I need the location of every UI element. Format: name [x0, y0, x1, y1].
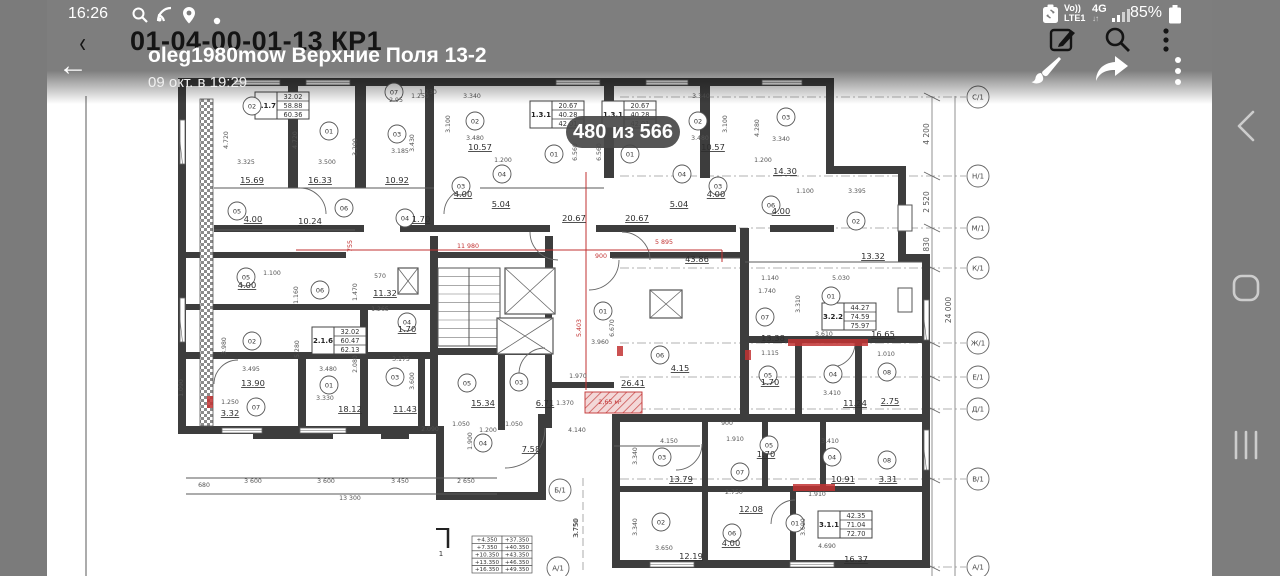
plan-label: 755 — [347, 240, 354, 252]
plan-label: 7.58 — [522, 444, 540, 454]
plan-label: 1.265 — [371, 306, 389, 313]
plan-label: 4.280 — [754, 119, 761, 137]
plan-label: 44.27 — [851, 304, 870, 312]
wall — [614, 414, 924, 422]
wall — [186, 304, 432, 310]
plan-label: 3 600 — [317, 478, 335, 485]
wall — [430, 236, 438, 428]
plan-label: 11.43 — [393, 404, 417, 414]
plan-label: 05 — [233, 207, 241, 215]
door-arc — [676, 444, 702, 470]
red-mark — [788, 339, 868, 346]
plan-label: 680 — [198, 482, 210, 489]
plan-label: 02 — [694, 117, 702, 125]
plan-label: 01 — [550, 150, 558, 158]
plan-label: 1.200 — [479, 427, 497, 434]
plan-label: 4.720 — [223, 131, 230, 149]
battery-percent: 85% — [1130, 4, 1162, 22]
plan-label: 3.31 — [879, 474, 897, 484]
plan-label: +13.350 — [475, 560, 500, 566]
plan-label: А/1 — [972, 564, 984, 572]
plan-label: 10.57 — [701, 142, 725, 152]
plan-label: 15.34 — [471, 398, 495, 408]
plan-label: 3.310 — [795, 295, 802, 313]
wall — [436, 426, 444, 498]
plan-label: 07 — [761, 313, 769, 321]
wall — [214, 225, 364, 232]
plan-label: 01 — [599, 307, 607, 315]
window — [180, 120, 185, 164]
plan-label: 4 200 — [922, 123, 931, 145]
window-bay — [898, 288, 912, 312]
plan-label: 4.00 — [238, 280, 256, 290]
plan-label: 3.980 — [221, 337, 228, 355]
plan-label: 14.30 — [773, 166, 797, 176]
plan-label: 2.090 — [421, 426, 439, 433]
plan-label: М/1 — [972, 225, 985, 233]
clock: 16:26 — [68, 5, 108, 23]
plan-label: 01 — [325, 381, 333, 389]
plan-label: 1.160 — [293, 286, 300, 304]
search-icon — [131, 6, 149, 29]
plan-label: 1.100 — [263, 270, 281, 277]
plan-label: 3.480 — [319, 366, 337, 373]
plan-label: 72.70 — [847, 530, 866, 538]
plan-label: 1.050 — [505, 421, 523, 428]
plan-label: 3.100 — [722, 115, 729, 133]
photo-counter-badge: 480 из 566 — [566, 116, 680, 148]
plan-label: 5.403 — [576, 319, 583, 337]
wall — [436, 492, 544, 500]
plan-label: 5.030 — [832, 275, 850, 282]
plan-label: 01 — [791, 519, 799, 527]
plan-label: 3.185 — [391, 148, 409, 155]
plan-label: 3.480 — [691, 135, 709, 142]
plan-label: 2 650 — [457, 478, 475, 485]
plan-label: 1.470 — [352, 283, 359, 301]
plan-label: 60.36 — [284, 111, 303, 119]
plan-label: Д/1 — [972, 406, 984, 414]
wall — [298, 356, 306, 428]
wall — [596, 225, 736, 232]
plan-label: 2 520 — [922, 191, 931, 213]
plan-label: 900 — [595, 253, 607, 260]
plan-label: 06 — [656, 351, 664, 359]
plan-label: 02 — [248, 337, 256, 345]
plan-label: 3.410 — [821, 438, 839, 445]
plan-label: 04 — [829, 370, 837, 378]
plan-label: +37.350 — [505, 538, 530, 544]
door-arc — [214, 360, 238, 384]
plan-label: 1.70 — [757, 449, 775, 459]
window-bay — [898, 205, 912, 231]
plan-label: 4.690 — [818, 543, 836, 550]
viewer-title: oleg1980mow Верхние Поля 13-2 — [148, 44, 487, 68]
nav-recents-button[interactable] — [1212, 415, 1280, 475]
android-nav-bar — [1212, 0, 1280, 576]
plan-label: 3.2.2 — [823, 313, 843, 321]
plan-label: А/1 — [552, 565, 564, 573]
plan-label: 11 980 — [457, 243, 479, 250]
plan-label: 04 — [678, 170, 686, 178]
plan-label: 13.38 — [761, 333, 785, 343]
wall — [538, 414, 546, 500]
plan-label: 1.900 — [467, 432, 474, 450]
plan-label: 07 — [736, 468, 744, 476]
plan-label: 01 — [626, 150, 634, 158]
plan-label: 1.090 — [178, 379, 185, 397]
wall — [381, 430, 409, 439]
plan-label: 04 — [479, 439, 487, 447]
plan-label: 3.175 — [392, 356, 410, 363]
plan-label: 2.75 — [881, 396, 899, 406]
red-mark — [745, 350, 751, 360]
plan-label: К/1 — [972, 265, 984, 273]
plan-label: 74.59 — [851, 313, 870, 321]
plan-label: 03 — [393, 130, 401, 138]
wall — [400, 225, 550, 232]
plan-label: 6.71 — [536, 398, 554, 408]
plan-label: 1.250 — [221, 399, 239, 406]
plan-label: 02 — [657, 518, 665, 526]
plan-label: 4.720 — [292, 131, 299, 149]
plan-label: 18.12 — [338, 404, 362, 414]
back-button[interactable]: ← — [58, 52, 88, 80]
plan-label: 1.200 — [754, 157, 772, 164]
wall — [610, 252, 740, 258]
plan-label: 3.330 — [316, 395, 334, 402]
plan-label: 3.500 — [318, 159, 336, 166]
plan-label: 20.67 — [625, 213, 649, 223]
plan-label: 02 — [471, 117, 479, 125]
plan-label: 1.910 — [726, 436, 744, 443]
plan-label: 3.750 — [573, 519, 580, 537]
plan-label: 3.960 — [591, 339, 609, 346]
plan-label: 4.00 — [707, 189, 725, 199]
plan-label: 5 895 — [655, 239, 673, 246]
plan-label: 570 — [374, 273, 386, 280]
plan-label: +10.350 — [475, 552, 500, 558]
signal-bars-icon — [1112, 8, 1130, 27]
plan-label: 03 — [515, 378, 523, 386]
plan-label: +7.350 — [477, 545, 498, 551]
plan-label: 3.410 — [823, 390, 841, 397]
plan-label: 2.1.6 — [313, 337, 333, 345]
party-wall — [200, 99, 213, 426]
plan-label: 3.340 — [772, 136, 790, 143]
brush-icon[interactable] — [1026, 54, 1062, 93]
phone-screen: 4 2002 5201 8303 6001 6201 6803 4503 900… — [0, 0, 1280, 576]
plan-label: +43.350 — [505, 552, 530, 558]
plan-label: 3 600 — [244, 478, 262, 485]
plan-label: 4.140 — [568, 427, 586, 434]
plan-label: 6.670 — [609, 319, 616, 337]
plan-label: 26.41 — [621, 378, 645, 388]
volte-indicator: Vo))LTE1 — [1064, 3, 1085, 23]
plan-label: 3.600 — [409, 372, 416, 390]
plan-label: 24 000 — [944, 297, 953, 323]
plan-label: 1.740 — [758, 288, 776, 295]
nav-back-button[interactable] — [1212, 96, 1280, 156]
plan-label: 3.430 — [409, 134, 416, 152]
plan-label: 1.970 — [569, 373, 587, 380]
plan-label: 11.32 — [373, 288, 397, 298]
plan-label: 62.13 — [341, 346, 360, 354]
plan-label: 05 — [463, 379, 471, 387]
plan-label: 3.1.1 — [819, 521, 839, 529]
plan-label: 4.15 — [671, 363, 689, 373]
plan-label: 1.050 — [452, 421, 470, 428]
plan-label: 12.19 — [679, 551, 703, 561]
plan-label: 1.100 — [796, 188, 814, 195]
plan-label: 1.115 — [761, 350, 779, 357]
plan-label: 32.02 — [341, 328, 360, 336]
plan-label: 3.495 — [242, 366, 260, 373]
plan-label: 1.200 — [494, 157, 512, 164]
plan-label: 4.00 — [772, 206, 790, 216]
plan-label: 4.00 — [722, 538, 740, 548]
location-icon — [182, 6, 196, 29]
wall — [826, 166, 906, 174]
plan-label: 04 — [401, 214, 409, 222]
viewer-overflow-menu-icon[interactable] — [1172, 54, 1184, 93]
plan-label: 3.480 — [466, 135, 484, 142]
plan-label: 15.69 — [240, 175, 264, 185]
plan-label: 3.32 — [221, 408, 239, 418]
plan-label: 01 — [827, 292, 835, 300]
plan-label: 71.04 — [847, 521, 866, 529]
plan-label: 1.140 — [761, 275, 779, 282]
plan-label: 02 — [852, 217, 860, 225]
wall — [418, 352, 425, 428]
plan-label: 5.04 — [670, 199, 688, 209]
plan-label: 16.65 — [871, 329, 895, 339]
wall — [498, 352, 505, 430]
plan-label: Ж/1 — [971, 340, 985, 348]
plan-label: 1.70 — [398, 324, 416, 334]
plan-label: 4.00 — [244, 214, 262, 224]
plan-label: 20.67 — [562, 213, 586, 223]
plan-label: 3.610 — [815, 331, 833, 338]
red-mark — [617, 346, 623, 356]
plan-label: 42.35 — [847, 512, 866, 520]
plan-label: 3.690 — [800, 518, 807, 536]
wall — [740, 228, 749, 418]
plan-label: 3.340 — [632, 518, 639, 536]
window — [180, 298, 185, 342]
notification-dot — [213, 12, 221, 30]
window — [924, 430, 929, 470]
plan-label: 01 — [325, 127, 333, 135]
plan-label: 10.91 — [831, 474, 855, 484]
plan-label: +40.350 — [505, 545, 530, 551]
plan-label: +4.350 — [477, 538, 498, 544]
plan-label: 3 450 — [391, 478, 409, 485]
plan-label: 3.340 — [632, 447, 639, 465]
plan-label: 3.650 — [655, 545, 673, 552]
plan-label: 1 — [439, 550, 443, 558]
plan-label: 1.3.1 — [531, 111, 551, 119]
viewer-date: 09 окт. в 19:29 — [148, 74, 247, 91]
plan-label: Е/1 — [972, 374, 983, 382]
plan-label: 13.32 — [861, 251, 885, 261]
plan-label: В/1 — [972, 476, 984, 484]
window — [924, 300, 929, 340]
wall — [702, 422, 708, 568]
plan-label: 10.24 — [298, 216, 322, 226]
plan-label: 3.200 — [352, 138, 359, 156]
plan-label: 03 — [391, 373, 399, 381]
plan-label: 03 — [658, 453, 666, 461]
plan-label: 43.86 — [685, 254, 709, 264]
plan-label: 11.24 — [843, 398, 867, 408]
plan-label: 06 — [340, 204, 348, 212]
plan-label: 900 — [721, 420, 733, 427]
plan-label: 1.70 — [412, 214, 430, 224]
plan-label: 04 — [498, 170, 506, 178]
plan-label: 10.57 — [468, 142, 492, 152]
plan-label: +49.350 — [505, 567, 530, 573]
plan-label: 13.79 — [669, 474, 693, 484]
rss-icon — [156, 6, 173, 28]
plan-label: 07 — [252, 403, 260, 411]
plan-label: 10.92 — [385, 175, 409, 185]
plan-label: 13.90 — [241, 378, 265, 388]
plan-label: 08 — [883, 456, 891, 464]
wall — [552, 382, 614, 388]
plan-label: 13 300 — [339, 495, 361, 502]
plan-label: 3.395 — [848, 188, 866, 195]
plan-label: 1.70 — [761, 377, 779, 387]
wall — [430, 252, 550, 258]
plan-label: +46.350 — [505, 560, 530, 566]
plan-label: 5.280 — [294, 340, 301, 358]
status-bar: 16:26 Vo))LTE1 4G ↓↑ 85% — [0, 0, 1212, 28]
red-mark — [793, 484, 835, 491]
battery-icon — [1168, 5, 1182, 29]
door-arc — [589, 260, 619, 290]
plan-label: 4.00 — [454, 189, 472, 199]
wall — [614, 486, 924, 492]
plan-label: 16.33 — [308, 175, 332, 185]
door-arc — [300, 188, 326, 214]
battery-saver-icon — [1042, 4, 1059, 29]
plan-label: 60.47 — [341, 337, 360, 345]
plan-label: +16.350 — [475, 567, 500, 573]
nav-home-button[interactable] — [1212, 258, 1280, 318]
plan-label: 03 — [782, 113, 790, 121]
plan-label: 1.010 — [877, 351, 895, 358]
plan-label: 2,65 м² — [598, 399, 622, 406]
plan-label: 3.100 — [445, 115, 452, 133]
red-mark — [207, 396, 213, 408]
wall — [770, 225, 834, 232]
plan-label: 75.97 — [851, 322, 870, 330]
plan-label: Н/1 — [972, 173, 984, 181]
share-icon[interactable] — [1094, 54, 1130, 89]
plan-label: 2.750 — [725, 489, 743, 496]
plan-label: 06 — [728, 529, 736, 537]
plan-label: Б/1 — [554, 487, 566, 495]
plan-label: 12.08 — [739, 504, 763, 514]
plan-label: 5.04 — [492, 199, 510, 209]
wall — [425, 86, 434, 232]
plan-label: 04 — [828, 453, 836, 461]
plan-label: 1.370 — [556, 400, 574, 407]
plan-label: 06 — [316, 286, 324, 294]
plan-label: 16.37 — [844, 554, 868, 564]
plan-label: 4.150 — [660, 438, 678, 445]
wall — [795, 343, 802, 418]
plan-label: 1.910 — [808, 491, 826, 498]
plan-label: 2.080 — [352, 355, 359, 373]
door-arc — [831, 343, 855, 367]
plan-label: 08 — [883, 368, 891, 376]
plan-label: 3.325 — [237, 159, 255, 166]
data-arrows-icon: ↓↑ — [1092, 14, 1098, 23]
